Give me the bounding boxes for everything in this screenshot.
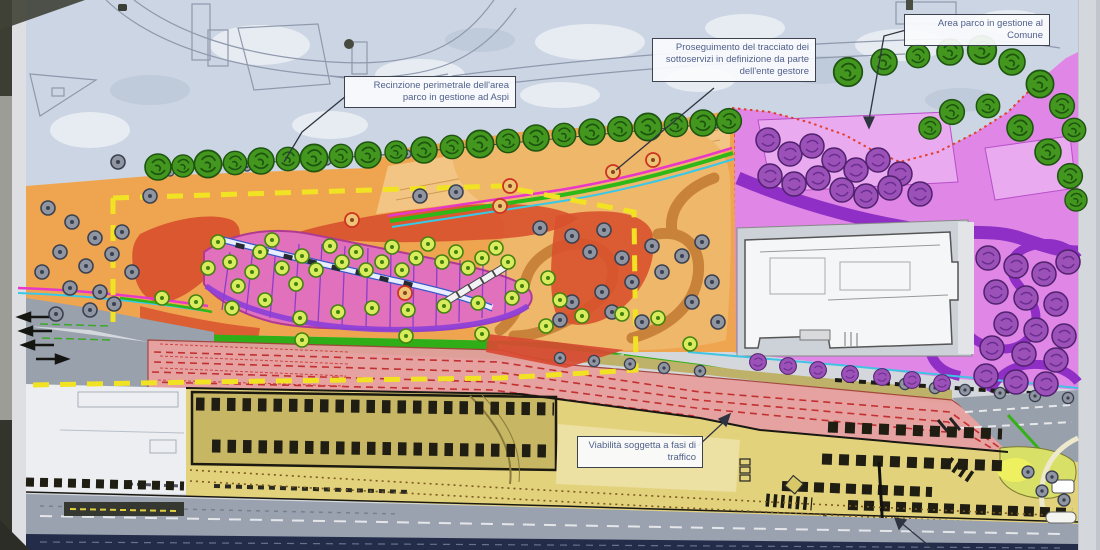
label-proseguimento: Proseguimento del tracciato dei sottoser… (652, 38, 816, 82)
label-recinzione: Recinzione perimetrale dell'area parco i… (344, 76, 516, 108)
label-area-parco: Area parco in gestione al Comune (904, 14, 1050, 46)
label-viabilita: Viabilità soggetta a fasi di traffico (577, 436, 703, 468)
building-footprint (737, 220, 974, 356)
site-plan-photo: Recinzione perimetrale dell'area parco i… (0, 0, 1100, 550)
site-plan-svg (0, 0, 1100, 550)
